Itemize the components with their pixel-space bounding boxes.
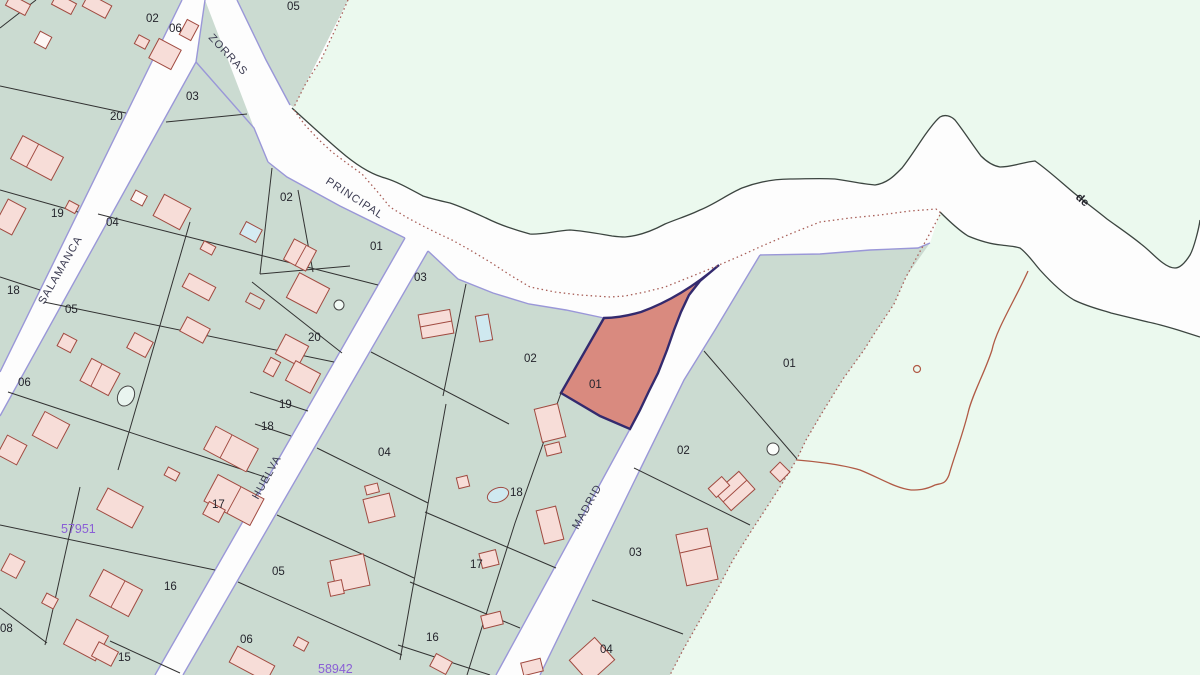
svg-text:05: 05 [65, 304, 78, 316]
svg-text:02: 02 [524, 353, 537, 365]
svg-text:15: 15 [118, 652, 131, 664]
svg-text:04: 04 [600, 644, 613, 656]
svg-text:17: 17 [212, 499, 225, 511]
svg-text:18: 18 [510, 487, 523, 499]
svg-text:16: 16 [164, 581, 177, 593]
svg-text:04: 04 [106, 217, 119, 229]
svg-text:19: 19 [279, 399, 292, 411]
svg-text:20: 20 [308, 332, 321, 344]
svg-text:18: 18 [7, 285, 20, 297]
svg-text:01: 01 [370, 241, 383, 253]
svg-text:04: 04 [378, 447, 391, 459]
svg-text:57951: 57951 [61, 522, 96, 536]
svg-text:06: 06 [18, 377, 31, 389]
svg-text:02: 02 [146, 13, 159, 25]
svg-text:05: 05 [272, 566, 285, 578]
svg-text:17: 17 [470, 559, 483, 571]
svg-text:06: 06 [169, 23, 182, 35]
svg-text:58942: 58942 [318, 662, 353, 675]
svg-text:03: 03 [414, 272, 427, 284]
svg-text:02: 02 [677, 445, 690, 457]
svg-text:19: 19 [51, 208, 64, 220]
svg-text:03: 03 [629, 547, 642, 559]
svg-text:16: 16 [426, 632, 439, 644]
svg-text:02: 02 [280, 192, 293, 204]
svg-text:03: 03 [186, 91, 199, 103]
svg-text:06: 06 [240, 634, 253, 646]
svg-text:20: 20 [110, 111, 123, 123]
svg-text:05: 05 [287, 1, 300, 13]
svg-text:18: 18 [261, 421, 274, 433]
svg-text:01: 01 [589, 379, 602, 391]
svg-text:08: 08 [0, 623, 13, 635]
svg-text:01: 01 [783, 358, 796, 370]
